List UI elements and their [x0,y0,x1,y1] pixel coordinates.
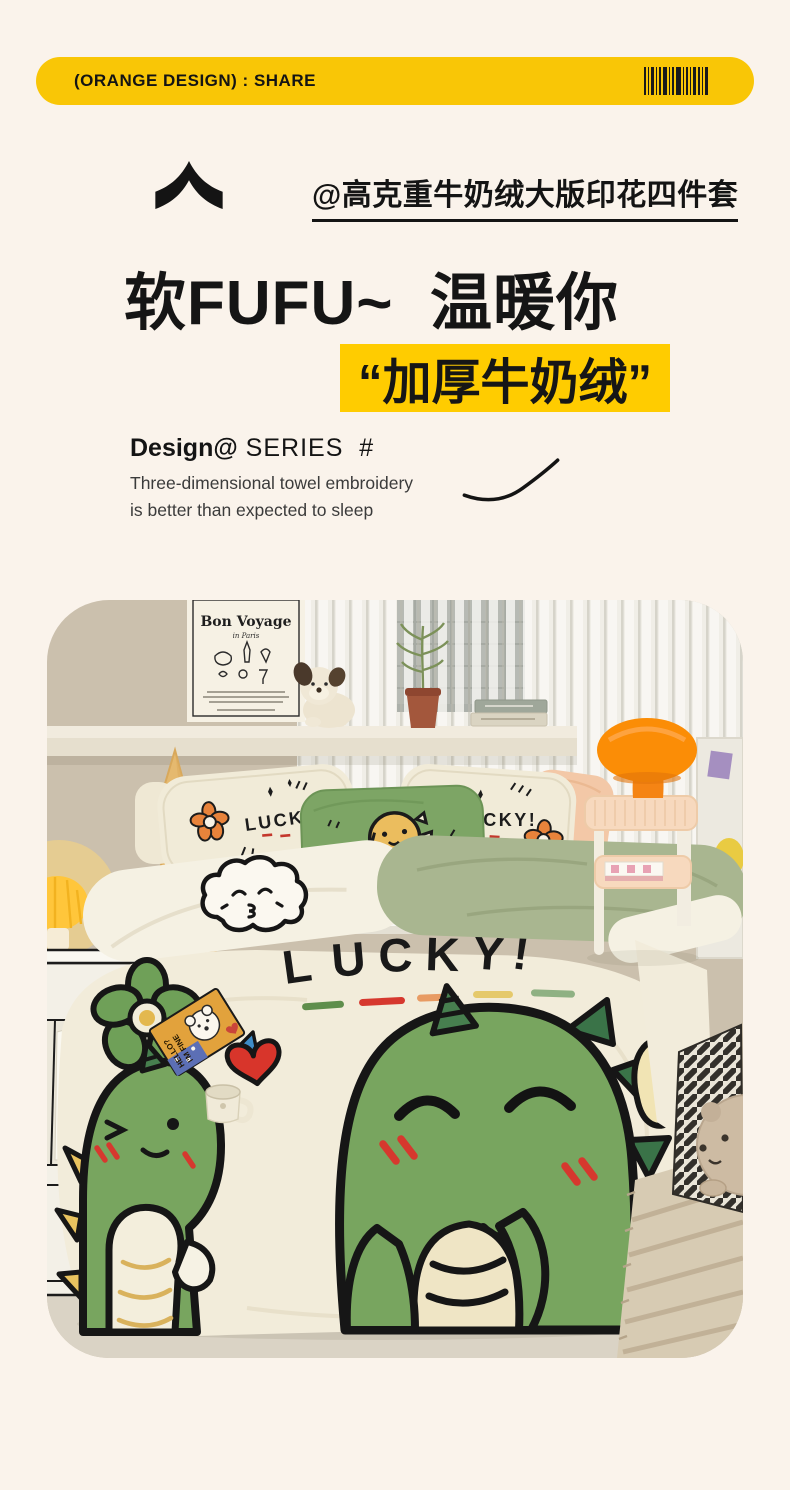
description-line-2: is better than expected to sleep [130,497,413,524]
shelf-books [471,700,547,726]
poster-title: Bon Voyage [200,614,291,630]
brand-banner-label: (ORANGE DESIGN) : SHARE [74,71,316,91]
promo-page: (ORANGE DESIGN) : SHARE @高克重牛奶绒大版印花四件套 软… [0,0,790,1506]
wall-shelf [47,726,577,765]
description-line-1: Three-dimensional towel embroidery [130,470,413,497]
barcode-icon [644,67,710,95]
brand-banner: (ORANGE DESIGN) : SHARE [36,57,754,105]
side-table-shelf [595,856,691,888]
series-label-bold: Design@ [130,434,238,462]
headline: 软FUFU~ 温暖你 [124,252,619,342]
chevron-up-icon [152,160,226,210]
poster-subtitle: in Paris [233,632,260,640]
bottom-strip [0,1490,790,1506]
product-photo: Bon Voyage in Paris [47,600,743,1358]
wall-poster: Bon Voyage in Paris [187,600,305,722]
svg-text:U: U [329,931,367,987]
swoosh-icon [462,455,560,505]
description: Three-dimensional towel embroidery is be… [130,470,413,523]
series-label-rest: SERIES # [238,434,374,462]
svg-text:C: C [377,928,413,982]
product-subtitle: @高克重牛奶绒大版印花四件套 [312,170,738,222]
series-label: Design@ SERIES # [130,434,374,463]
side-table-tray [585,796,697,830]
highlight-slogan: “加厚牛奶绒” [340,344,670,412]
